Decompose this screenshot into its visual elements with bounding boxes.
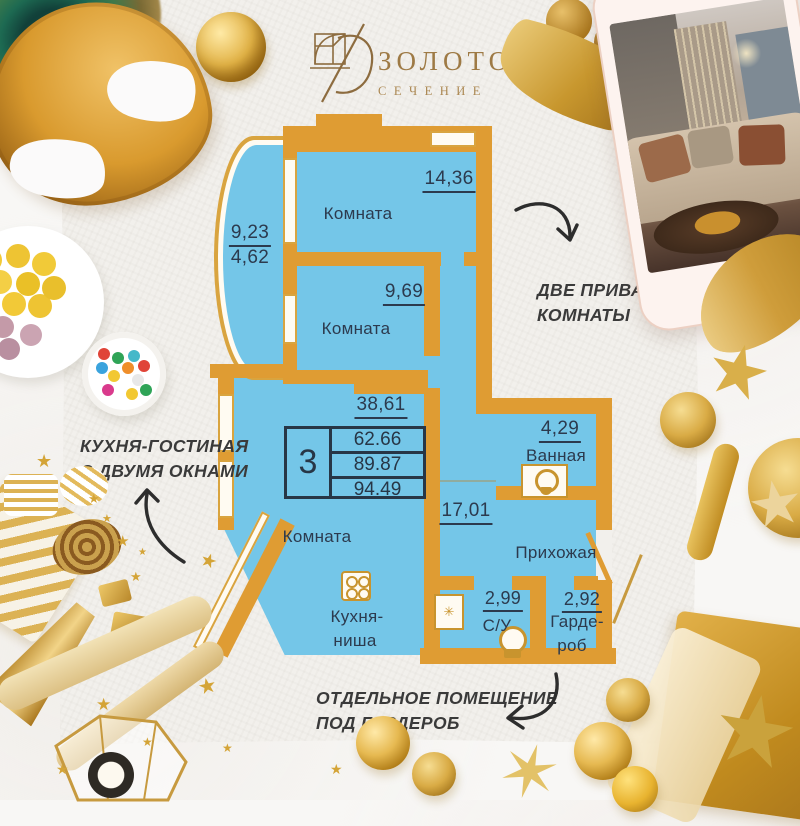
- wall: [316, 114, 382, 128]
- festive-floorplan-flyer: { "logo": { "title": "ЗОЛОТОЕ", "subtitl…: [0, 0, 800, 800]
- hallway-area: 17,01: [439, 500, 492, 525]
- wardrobe-label-1: Гарде-: [550, 612, 604, 632]
- arrow-to-private-rooms: [508, 196, 586, 256]
- kitchen-niche-label-2: ниша: [333, 631, 376, 651]
- summary-area-living: 62.66: [332, 429, 423, 454]
- wall: [476, 126, 492, 272]
- room1-fill: [290, 132, 485, 267]
- sink-icon: [521, 464, 568, 498]
- room1-area: 14,36: [422, 168, 475, 193]
- phone-screen-interior-photo: [609, 0, 800, 273]
- balcony-area-half: 4,62: [231, 247, 269, 269]
- room1-label: Комната: [324, 204, 393, 224]
- wc-label: С/У: [483, 616, 512, 636]
- yellow-candies: [0, 248, 2, 272]
- living-area: 38,61: [354, 394, 407, 419]
- decoration-candle: [88, 752, 134, 798]
- wall: [424, 260, 440, 356]
- washing-machine-icon: ✳: [434, 594, 464, 630]
- wall: [432, 576, 474, 590]
- decoration-gold-bauble: [606, 678, 650, 722]
- summary-area-full: 94.49: [332, 479, 423, 501]
- room-count: 3: [287, 429, 332, 496]
- decoration-gold-bauble: [196, 12, 266, 82]
- decoration-gold-bauble: [412, 752, 456, 796]
- balcony-door: [283, 158, 297, 244]
- decoration-gold-bauble: [356, 716, 410, 770]
- hallway-label: Прихожая: [515, 543, 596, 563]
- decoration-carnival-mask: [0, 0, 230, 220]
- apartment-summary-box: 3 62.66 89.87 94.49: [284, 426, 426, 499]
- summary-areas: 62.66 89.87 94.49: [332, 429, 423, 496]
- decoration-candy-bowl: [82, 332, 166, 416]
- candies: [98, 348, 110, 360]
- bathroom-area: 4,29: [539, 418, 581, 443]
- pillow: [738, 125, 785, 167]
- stove-icon: [341, 571, 371, 601]
- decoration-gold-bauble: [660, 392, 716, 448]
- wc-area: 2,99: [483, 588, 523, 612]
- room2-label: Комната: [322, 319, 391, 339]
- golden-section-logo-mark: [308, 22, 380, 104]
- balcony-window: [283, 294, 297, 344]
- balcony-area-full: 9,23: [229, 222, 271, 247]
- decoration-gold-bauble: [612, 766, 658, 812]
- room2-area: 9,69: [383, 281, 425, 306]
- arrow-to-wardrobe: [498, 668, 564, 736]
- summary-area-total: 89.87: [332, 454, 423, 479]
- pillow: [687, 125, 735, 169]
- wardrobe-label-2: роб: [557, 636, 587, 656]
- living-label: Комната: [283, 527, 352, 547]
- window: [430, 131, 476, 147]
- wall: [530, 576, 546, 664]
- wall: [354, 382, 428, 394]
- wall: [574, 576, 598, 590]
- bathroom-label: Ванная: [526, 446, 586, 466]
- wall: [476, 260, 492, 414]
- wall: [283, 252, 441, 266]
- wardrobe-area: 2,92: [562, 589, 602, 613]
- decoration-washi-tape: [4, 474, 58, 516]
- kitchen-niche-label-1: Кухня-: [331, 607, 384, 627]
- bathroom-door-swing: [440, 480, 496, 482]
- wall: [484, 398, 612, 414]
- decoration-washi-tape: [60, 466, 108, 506]
